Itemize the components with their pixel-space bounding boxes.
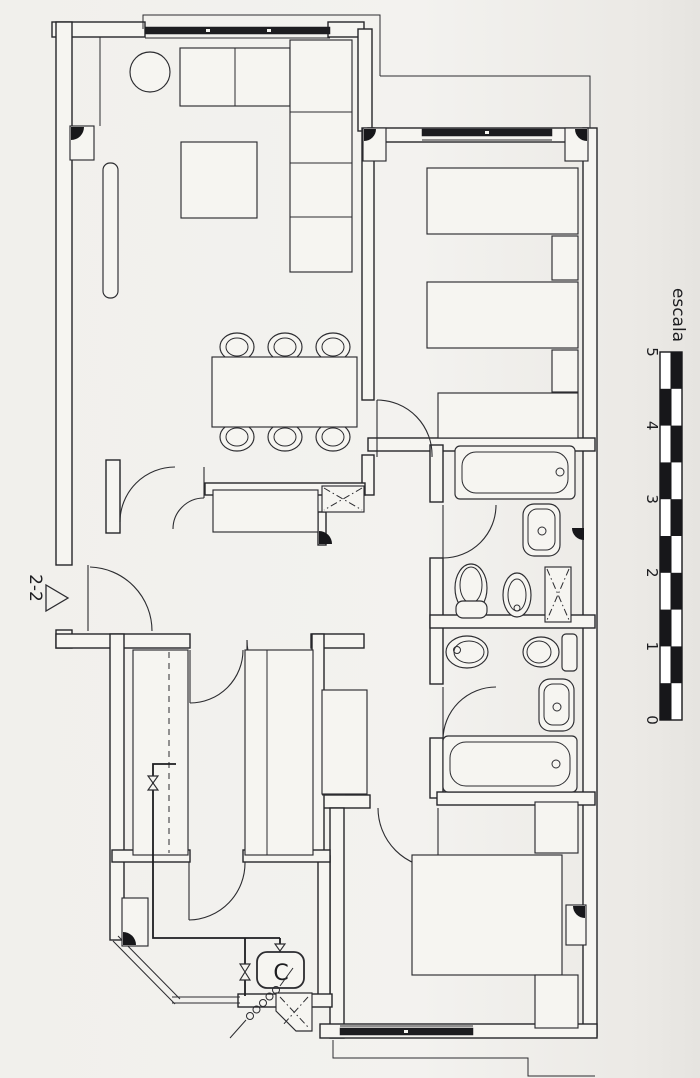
gas-boiler: C: [257, 952, 304, 988]
dresser: [438, 393, 578, 438]
coffee-table: [181, 142, 257, 218]
column: [565, 128, 588, 161]
bedroom2-furniture: [412, 802, 578, 1028]
floor-plan-drawing: C 2-2 escala: [0, 0, 700, 1078]
bathroom1-fixtures: [455, 446, 575, 622]
laundry-door: [189, 862, 245, 920]
column: [566, 905, 586, 945]
right-triangle-icon: [46, 585, 68, 611]
dining-table: [212, 357, 357, 427]
hall-cabinet: [213, 490, 318, 532]
scale-tick: 1: [643, 642, 661, 652]
nightstand: [535, 975, 578, 1028]
kitchen-counter: [133, 650, 188, 855]
scale-bar: escala 5 4 3 2 1 0: [643, 288, 688, 725]
living-room-furniture: [103, 40, 357, 451]
entry-door: [88, 565, 152, 631]
section-label: 2-2: [25, 574, 45, 602]
scanned-drawing-sheet: C 2-2 escala: [0, 0, 700, 1078]
column: [363, 128, 386, 161]
vent-shaft: [322, 486, 364, 512]
bathroom2-door: [443, 687, 496, 740]
duct: [276, 993, 312, 1031]
nightstand: [552, 236, 578, 280]
scale-tick: 0: [643, 715, 661, 725]
toilet: [455, 564, 487, 618]
living-room-window: [145, 27, 330, 34]
scale-tick: 5: [643, 347, 661, 357]
bedroom1-furniture: [427, 168, 578, 438]
twin-bed-2: [427, 282, 578, 348]
boiler-label: C: [273, 961, 288, 986]
double-bed: [412, 855, 562, 975]
kitchen-counter: [245, 650, 313, 855]
living-room-double-door: [120, 467, 204, 529]
washbasin: [539, 679, 574, 731]
column: [122, 898, 148, 946]
bidet: [446, 636, 488, 668]
column: [70, 126, 94, 160]
washbasin: [523, 504, 560, 556]
bathtub: [455, 446, 575, 499]
bidet: [503, 573, 531, 617]
scale-tick: 2: [643, 568, 661, 578]
section-marker: 2-2: [25, 574, 68, 611]
radiator: [103, 163, 118, 298]
nightstand: [535, 802, 578, 853]
nightstand: [552, 350, 578, 392]
kitchen-door: [190, 650, 243, 703]
hall-furniture: [213, 486, 364, 532]
column: [572, 528, 584, 540]
toilet: [523, 634, 577, 671]
bathroom1-door: [443, 505, 496, 558]
gas-valve: [240, 964, 250, 980]
round-side-table: [130, 52, 170, 92]
vent-shaft: [545, 567, 571, 622]
scale-bar-title: escala: [668, 288, 688, 342]
column: [319, 531, 332, 544]
scale-tick: 3: [643, 494, 661, 504]
twin-bed-1: [427, 168, 578, 234]
bathroom2-fixtures: [443, 634, 577, 792]
scale-tick: 4: [643, 421, 661, 431]
laundry-chamfer-window: [113, 941, 175, 1004]
bathtub: [443, 736, 577, 792]
corridor-wardrobe: [322, 690, 367, 795]
